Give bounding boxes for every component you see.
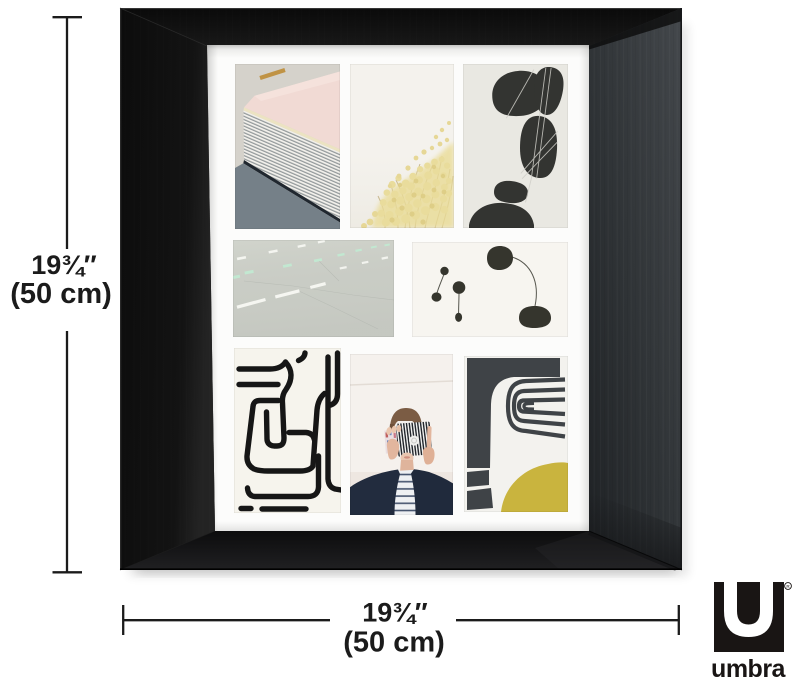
svg-text:19¾″: 19¾″	[31, 250, 97, 280]
svg-text:19¾″: 19¾″	[362, 598, 428, 628]
svg-text:umbra: umbra	[711, 655, 787, 683]
svg-text:(50 cm): (50 cm)	[10, 278, 112, 310]
svg-text:(50 cm): (50 cm)	[343, 627, 445, 659]
